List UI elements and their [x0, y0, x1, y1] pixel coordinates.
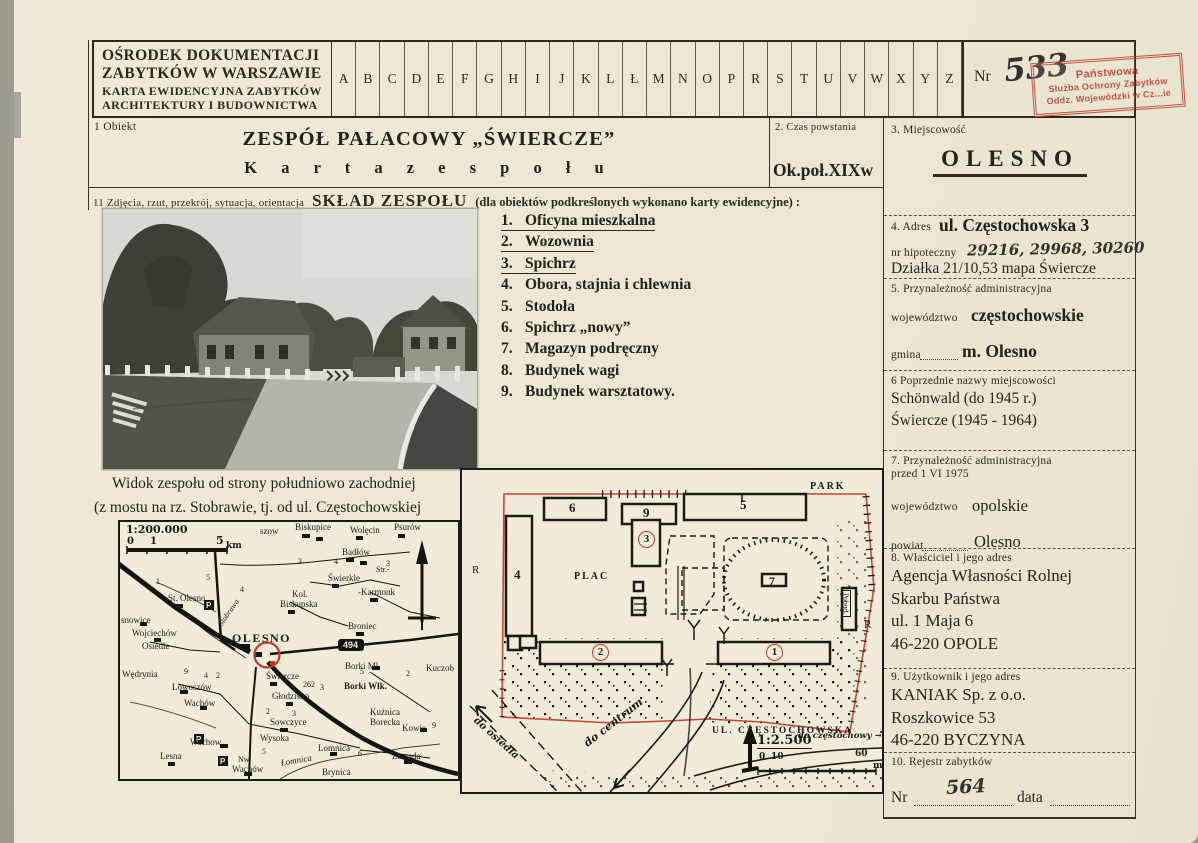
plan-label: PARK — [810, 482, 846, 492]
index-letter: G — [477, 42, 501, 116]
map-label: Wojciechów — [132, 629, 177, 638]
field10-data-label: data — [1017, 789, 1043, 807]
map-label: 2 — [266, 708, 270, 716]
institution-line: KARTA EWIDENCYJNA ZABYTKÓW — [102, 84, 327, 98]
plan-label: do centrum — [582, 696, 645, 748]
index-letter: H — [502, 42, 526, 116]
index-letter: E — [429, 42, 453, 116]
field5-label: 5. Przynależność administracyjna — [891, 283, 1052, 295]
map-label: Kol. — [292, 590, 308, 599]
map-label: 1:200.000 — [126, 524, 187, 535]
field8-line: 46-220 OPOLE — [891, 633, 1072, 656]
plan-label: 1 — [766, 644, 783, 661]
object-title-block: ZESPÓŁ PAŁACOWY „ŚWIERCZE” K a r t a z e… — [104, 128, 754, 178]
map-label: Badłów — [342, 548, 370, 557]
map-label: Kuczob — [426, 664, 454, 673]
photo-caption-line: Widok zespołu od strony południowo zacho… — [94, 472, 494, 496]
field11-note: (dla obiektów podkreślonych wykonano kar… — [475, 195, 800, 209]
map-label: Broniec — [348, 622, 377, 631]
scan-smudge — [14, 92, 21, 138]
map-label: Zawada — [392, 752, 420, 761]
field6-values: Schönwald (do 1945 r.)Świercze (1945 - 1… — [891, 388, 1037, 431]
map-label: 3 — [320, 684, 324, 692]
index-letter: R — [744, 42, 768, 116]
institution-line: OŚRODEK DOKUMENTACJI — [102, 47, 327, 65]
index-letter: J — [550, 42, 574, 116]
field5-woj-value: częstochowskie — [971, 305, 1084, 326]
index-letter: O — [696, 42, 720, 116]
map-label: Wachow — [190, 738, 221, 747]
scanned-card-paper: OŚRODEK DOKUMENTACJIZABYTKÓW W WARSZAWIE… — [14, 0, 1198, 843]
composition-item: 9.Budynek warsztatowy. — [501, 383, 881, 404]
map-label: 5 — [262, 748, 266, 756]
field8-line: Skarbu Państwa — [891, 588, 1072, 611]
map-label: -Karmonk — [358, 588, 395, 597]
plan-label: 7 — [769, 575, 775, 587]
divider — [884, 278, 1135, 279]
composition-item: 6.Spichrz „nowy” — [501, 319, 881, 340]
field10-nr-label: Nr — [891, 789, 907, 807]
index-letter: L — [599, 42, 623, 116]
map-label: Wachów — [232, 765, 263, 774]
plan-label: Pobud. — [841, 590, 851, 617]
map-label: Wolęcin — [350, 526, 380, 535]
map-label: 2 — [406, 670, 410, 678]
map-label: Brynica — [322, 768, 351, 777]
object-subtitle: K a r t a z e s p o ł u — [104, 158, 754, 178]
composition-item: 1.Oficyna mieszkalna — [501, 212, 881, 233]
plan-label: 60 — [855, 750, 868, 759]
map-label: Łomnica — [280, 754, 313, 768]
plan-label: 2 — [592, 644, 609, 661]
map-label: Kowie — [402, 724, 426, 733]
photo-view-southwest — [102, 208, 478, 470]
map-label: OLESNO — [232, 632, 291, 644]
plan-label: do częstochowy → — [798, 732, 882, 741]
index-letter-row: ABCDEFGHIJKLŁMNOPRSTUVWXYZ — [332, 42, 962, 116]
map-label: 4 — [204, 672, 208, 680]
index-letter: I — [526, 42, 550, 116]
map-label: 5 — [216, 535, 224, 546]
map-label: Borki Wlk. — [344, 682, 387, 691]
site-plan: PARKPLAC69547321RRPobud.UL. CZĘSTOCHOWSK… — [460, 468, 884, 794]
map-label: Wysoka — [260, 734, 289, 743]
nr-label: Nr — [974, 68, 991, 86]
plan-label: 3 — [638, 531, 655, 548]
composition-item: 5.Stodoła — [501, 298, 881, 319]
composition-item: 3.Spichrz — [501, 255, 881, 276]
plan-label: 0 — [759, 753, 765, 762]
index-letter: N — [671, 42, 695, 116]
map-label: Świercze — [266, 672, 299, 681]
field8-values: Agencja Własności RolnejSkarbu Państwaul… — [891, 565, 1072, 655]
field5-gmina-value: m. Olesno — [962, 341, 1037, 362]
field4-value: ul. Częstochowska 3 — [939, 215, 1089, 236]
map-label: 1 — [156, 578, 160, 586]
map-label: 3 — [292, 710, 296, 718]
institution-block: OŚRODEK DOKUMENTACJIZABYTKÓW W WARSZAWIE… — [94, 42, 332, 116]
field7-label2: przed 1 VI 1975 — [891, 468, 969, 480]
plan-label: 6 — [569, 501, 576, 514]
dotted-fill — [920, 346, 958, 360]
map-label: Nw. — [238, 756, 251, 764]
institution-line: ZABYTKÓW W WARSZAWIE — [102, 65, 327, 83]
map-label: 1 — [150, 537, 157, 547]
card-left-border — [88, 40, 89, 210]
map-label: Sowczyce — [270, 718, 306, 727]
composition-item: 4.Obora, stajnia i chlewnia — [501, 276, 881, 297]
object-title: ZESPÓŁ PAŁACOWY „ŚWIERCZE” — [104, 128, 754, 151]
index-letter: Z — [938, 42, 962, 116]
map-label: 5 — [360, 668, 364, 676]
field7-powiat-value: Olesno — [974, 532, 1021, 552]
field4-hipoteczny-label: nr hipoteczny — [891, 247, 957, 259]
field7-label: 7. Przynależność administracyjna — [891, 455, 1052, 467]
field7-woj-value: opolskie — [972, 496, 1028, 516]
field2-value: Ok.poł.XIXw — [773, 160, 873, 181]
map-label: Biskupska — [280, 600, 318, 609]
field2-box: 2. Czas powstania Ok.poł.XIXw — [769, 118, 884, 188]
composition-item: 7.Magazyn podręczny — [501, 340, 881, 361]
institution-line: ARCHITEKTURY I BUDOWNICTWA — [102, 98, 327, 112]
field4-label: 4. Adres — [891, 221, 931, 233]
field6-line: Świercze (1945 - 1964) — [891, 410, 1037, 432]
index-letter: Ł — [623, 42, 647, 116]
plan-label: m — [873, 762, 883, 771]
map-label: 0 — [127, 537, 134, 547]
plan-label: do osiedla — [471, 716, 520, 761]
index-letter: D — [405, 42, 429, 116]
plan-label: PLAC — [574, 572, 609, 582]
index-letter: F — [453, 42, 477, 116]
field9-values: KANIAK Sp. z o.o.Roszkowice 5346-220 BYC… — [891, 684, 1026, 752]
map-label: 262 — [303, 681, 315, 689]
map-label: Wachów — [184, 699, 215, 708]
map-label: Wędrynia — [122, 670, 157, 679]
divider — [884, 370, 1135, 371]
index-letter: S — [768, 42, 792, 116]
plan-label: R — [864, 620, 871, 631]
field3-value: OLESNO — [884, 146, 1136, 177]
field7-powiat-label: powiat — [891, 540, 924, 552]
index-letter: X — [889, 42, 913, 116]
index-letter: B — [356, 42, 380, 116]
map-label: 4 — [334, 558, 338, 566]
map-label: 6 — [358, 750, 362, 758]
location-map: P P P 494 1:200.000015kmszowBiskupiceWol… — [118, 520, 460, 781]
divider — [884, 450, 1135, 451]
official-stamp: PaństwowaSłużba Ochrony ZabytkówOddz. Wo… — [1030, 53, 1185, 117]
map-label: Osiedle — [142, 642, 170, 651]
plan-label: 9 — [643, 506, 650, 519]
index-letter: Y — [914, 42, 938, 116]
map-label: Lesna — [160, 752, 182, 761]
field10-label: 10. Rejestr zabytków — [891, 756, 992, 768]
photo-caption: Widok zespołu od strony południowo zacho… — [94, 472, 494, 520]
map-label: Świerkle — [328, 574, 360, 583]
map-label: Borecka — [370, 718, 400, 727]
index-letter: K — [574, 42, 598, 116]
map-label: Psurów — [394, 523, 421, 532]
map-label: 5 — [206, 574, 210, 582]
map-label: Biskupice — [295, 523, 331, 532]
field5-gmina-label: gmina — [891, 349, 921, 361]
map-label: 9 — [432, 722, 436, 730]
map-label: Lowoszów — [172, 683, 212, 692]
index-letter: P — [720, 42, 744, 116]
divider — [884, 668, 1135, 669]
map-label: 4 — [240, 586, 244, 594]
divider — [884, 752, 1135, 753]
plan-label: 10 — [771, 753, 784, 762]
header-box: OŚRODEK DOKUMENTACJIZABYTKÓW W WARSZAWIE… — [92, 40, 1136, 118]
map-label: Lomnica — [318, 744, 350, 753]
map-label: St. Olesno — [168, 594, 206, 603]
field6-line: Schönwald (do 1945 r.) — [891, 388, 1037, 410]
map-label: szow — [260, 527, 279, 536]
index-letter: C — [380, 42, 404, 116]
card-bottom-line — [883, 817, 1136, 819]
field4-hipoteczny-value: 29216, 29968, 30260 — [967, 238, 1145, 259]
index-letter: A — [332, 42, 356, 116]
map-label: 3 — [298, 558, 302, 566]
map-label: snowice — [121, 616, 151, 625]
field3-label: 3. Miejscowość — [891, 124, 966, 136]
field2-label: 2. Czas powstania — [775, 122, 856, 133]
title-row-bottom-line — [88, 187, 884, 188]
photo-caption-line: (z mostu na rz. Stobrawie, tj. od ul. Cz… — [94, 496, 494, 520]
field4-dzialka: Działka 21/10,53 mapa Świercze — [891, 260, 1096, 278]
field9-label: 9. Użytkownik i jego adres — [891, 671, 1020, 683]
dotted-fill — [1050, 792, 1130, 806]
index-letter: T — [792, 42, 816, 116]
index-letter: U — [817, 42, 841, 116]
field9-line: 46-220 BYCZYNA — [891, 729, 1026, 752]
field5-woj-label: województwo — [891, 312, 958, 324]
index-letter: W — [865, 42, 889, 116]
index-letter: V — [841, 42, 865, 116]
plan-label: R — [472, 565, 479, 576]
field9-line: Roszkowice 53 — [891, 707, 1026, 730]
field8-label: 8. Właściciel i jego adres — [891, 552, 1012, 564]
composition-item: 8.Budynek wagi — [501, 362, 881, 383]
map-label: 9 — [184, 668, 188, 676]
field8-line: ul. 1 Maja 6 — [891, 610, 1072, 633]
field8-line: Agencja Własności Rolnej — [891, 565, 1072, 588]
map-label: 2 — [216, 672, 220, 680]
map-label: km — [226, 542, 242, 551]
field7-woj-label: województwo — [891, 501, 958, 513]
field6-label: 6 Poprzednie nazwy miejscowości — [891, 375, 1056, 387]
index-letter: M — [647, 42, 671, 116]
plan-label: 5 — [740, 498, 747, 511]
map-label: Głodzisko — [272, 692, 309, 701]
divider — [884, 548, 1135, 549]
map-label: Stobrawa — [217, 598, 241, 628]
composition-list: 1.Oficyna mieszkalna2.Wozownia3.Spichrz4… — [501, 212, 881, 405]
field9-line: KANIAK Sp. z o.o. — [891, 684, 1026, 707]
map-label: Kuźnica — [370, 708, 400, 717]
plan-label: 4 — [514, 568, 521, 581]
photo-image — [103, 209, 477, 469]
map-label: 3 — [386, 560, 390, 568]
composition-item: 2.Wozownia — [501, 233, 881, 254]
field10-nr-value: 564 — [945, 775, 986, 799]
